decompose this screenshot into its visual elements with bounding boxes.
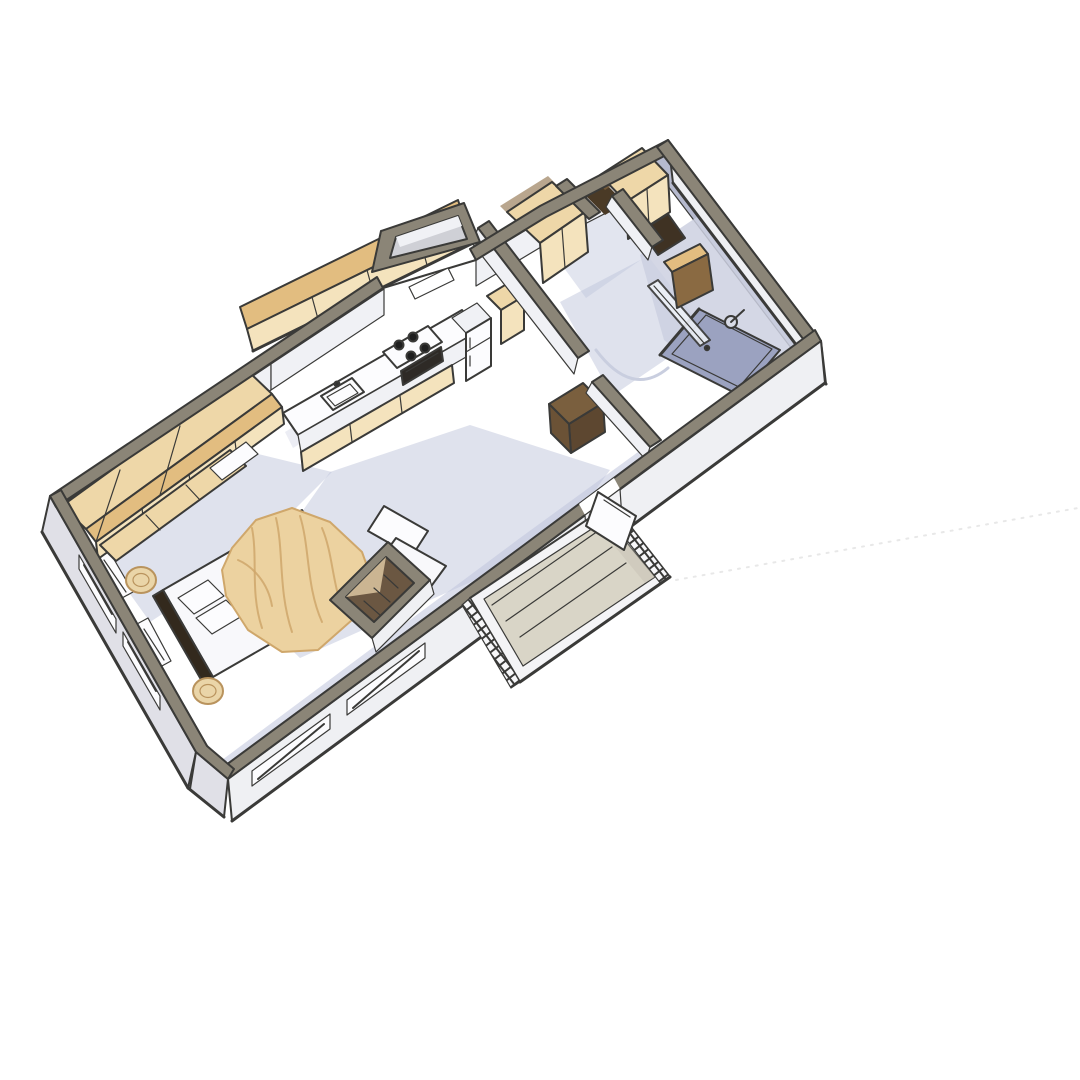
burner <box>409 333 418 342</box>
floorplan-3d-view <box>0 0 1080 1080</box>
burner <box>407 352 416 361</box>
burner <box>421 344 430 353</box>
stool-ring <box>133 574 149 587</box>
stool-ring <box>200 685 216 698</box>
faucet <box>335 382 340 387</box>
shower-control <box>705 346 709 350</box>
canvas <box>0 0 1080 1080</box>
burner <box>395 341 404 350</box>
ground-line <box>676 508 1078 580</box>
